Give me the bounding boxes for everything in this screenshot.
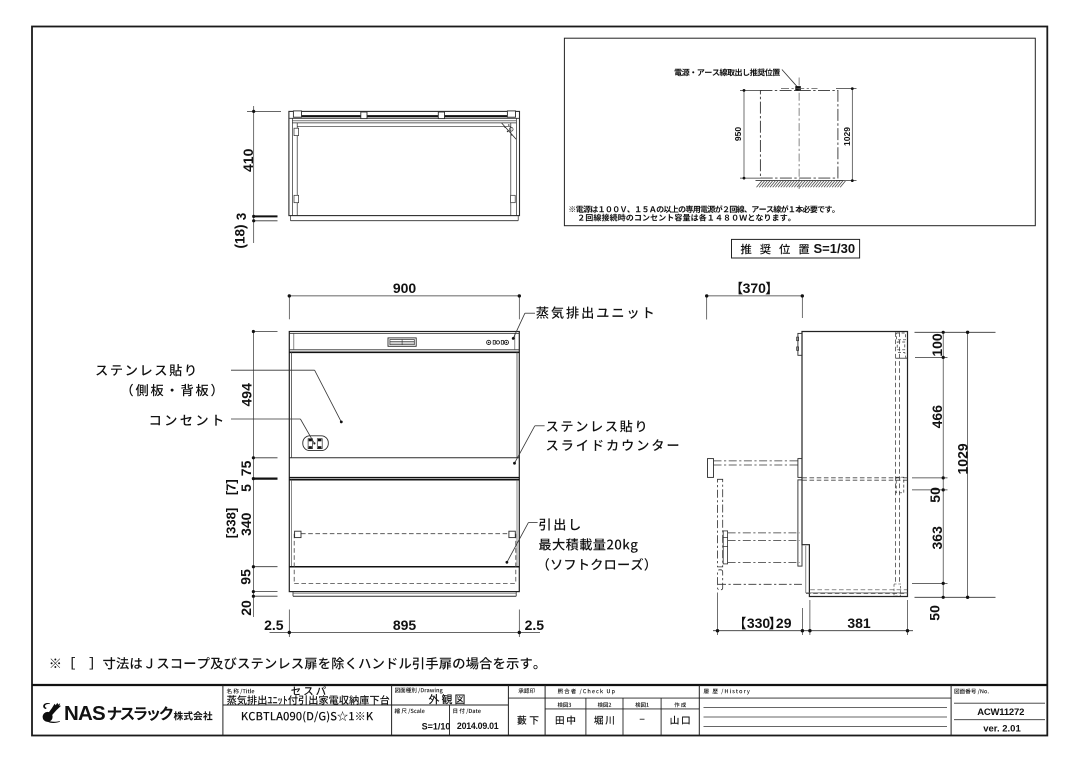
svg-text:[7]: [7]: [224, 479, 239, 495]
svg-text:(18): (18): [233, 224, 248, 248]
svg-text:S=1/10: S=1/10: [422, 721, 451, 731]
svg-text:100: 100: [929, 333, 945, 357]
svg-text:50: 50: [927, 605, 943, 621]
svg-text:S=1/30: S=1/30: [814, 241, 856, 256]
svg-text:1029: 1029: [842, 127, 852, 146]
svg-text:330: 330: [747, 615, 771, 631]
svg-text:494: 494: [238, 383, 254, 407]
svg-text:95: 95: [237, 569, 253, 585]
svg-text:[338]: [338]: [224, 508, 239, 538]
svg-text:ver. 2.01: ver. 2.01: [983, 724, 1021, 735]
svg-text:20: 20: [238, 600, 254, 616]
svg-text:410: 410: [240, 148, 256, 172]
svg-text:1029: 1029: [954, 443, 970, 474]
svg-text:895: 895: [393, 617, 417, 633]
svg-text:75: 75: [238, 460, 254, 476]
svg-text:NAS: NAS: [64, 702, 105, 725]
svg-text:363: 363: [929, 526, 945, 550]
svg-text:2.5: 2.5: [264, 617, 284, 633]
svg-text:29: 29: [776, 615, 792, 631]
svg-text:340: 340: [238, 512, 254, 536]
svg-text:900: 900: [393, 280, 417, 296]
svg-text:950: 950: [733, 127, 743, 141]
svg-text:3: 3: [234, 212, 249, 220]
svg-text:5: 5: [238, 484, 254, 492]
svg-text:381: 381: [847, 615, 871, 631]
svg-text:2014.09.01: 2014.09.01: [457, 721, 499, 731]
svg-text:370: 370: [743, 280, 767, 296]
svg-text:466: 466: [929, 405, 945, 429]
svg-text:2.5: 2.5: [525, 617, 545, 633]
svg-text:ACW11272: ACW11272: [977, 707, 1024, 718]
svg-text:50: 50: [927, 487, 943, 503]
